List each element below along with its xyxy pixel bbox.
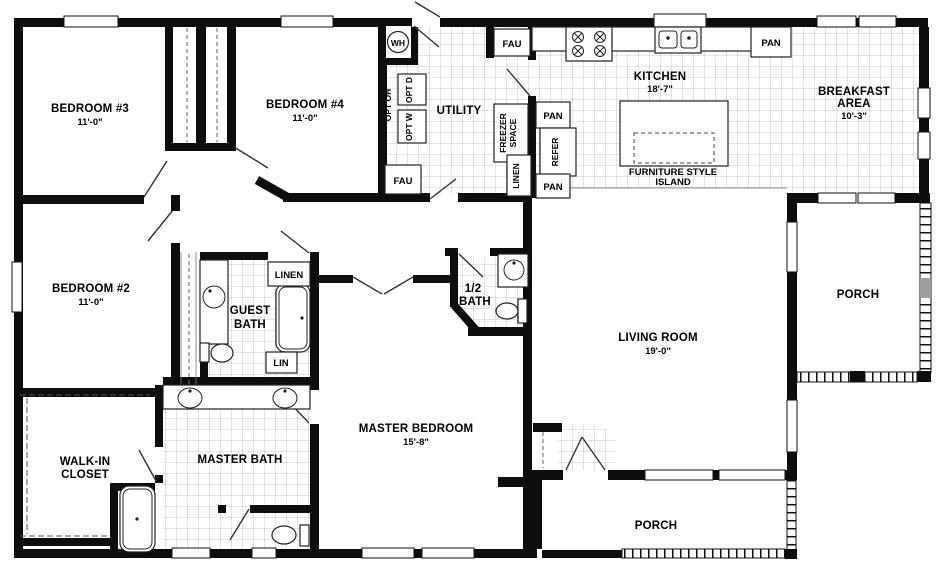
bedroom3-dim: 11'-0" (77, 117, 102, 128)
master-bath-floor (163, 385, 310, 549)
master-sink-right-faucet (283, 389, 286, 392)
opt-w-label: OPT W (404, 112, 414, 141)
master-bedroom-window-2 (422, 548, 474, 558)
opt-d-label: OPT D (404, 77, 414, 103)
floor-plan-drawing: BEDROOM #3 11'-0" BEDROOM #4 11'-0" BEDR… (0, 0, 943, 574)
living-label: LIVING ROOM (618, 332, 698, 344)
half-bath-toilet-bowl (496, 303, 518, 319)
freezer-label-1: FREEZER (498, 113, 508, 153)
bedroom2-dim: 11'-0" (78, 297, 103, 308)
walkin-door (139, 450, 156, 481)
breakfast-porch-window-2 (858, 193, 895, 203)
guest-bath-label-2: BATH (234, 319, 266, 331)
bedroom2-label: BEDROOM #2 (52, 283, 130, 295)
master-double-door-left (353, 277, 382, 294)
breakfast-right-window-1 (918, 88, 930, 118)
utility-exterior-door-leaf-out (415, 2, 440, 17)
railings (622, 203, 931, 558)
porch-wall-window-2 (719, 470, 785, 480)
opt-oh-label: OPT OH (383, 89, 393, 122)
floor-plan-canvas: BEDROOM #3 11'-0" BEDROOM #4 11'-0" BEDR… (0, 0, 943, 574)
breakfast-porch-window-1 (818, 193, 856, 203)
guest-toilet-tank (200, 343, 209, 362)
bottom-porch-label: PORCH (635, 520, 678, 532)
right-porch-label: PORCH (837, 289, 880, 301)
breakfast-label-1: BREAKFAST (818, 86, 890, 98)
breakfast-window-1 (817, 16, 856, 27)
lin-label: LIN (273, 358, 288, 369)
pan-lower-label: PAN (543, 182, 562, 193)
bedroom3-label: BEDROOM #3 (51, 103, 129, 115)
breakfast-right-window-2 (918, 132, 930, 159)
guest-bath-tub (276, 284, 310, 352)
living-east-window (787, 400, 797, 452)
half-bath-toilet-tank (518, 299, 527, 323)
master-bedroom-label: MASTER BEDROOM (359, 423, 474, 435)
guest-toilet-bowl (211, 344, 233, 362)
right-porch-railing-post-gray (920, 278, 931, 298)
master-bath-label: MASTER BATH (197, 454, 282, 466)
pan-upper-label: PAN (543, 111, 562, 122)
sink-drain-left (666, 36, 670, 40)
guest-bath-sink-faucet (208, 289, 211, 292)
master-toilet-tank (300, 525, 309, 546)
kitchen-dim: 18'-7" (647, 84, 673, 95)
bedroom2-door (148, 210, 173, 241)
walkin-label-2: CLOSET (61, 469, 109, 481)
pan-kitchen-label: PAN (761, 38, 780, 49)
bedroom2-window (12, 262, 22, 312)
kitchen-counter (532, 27, 752, 51)
master-double-door-right (384, 277, 413, 294)
island-label-2: ISLAND (655, 177, 691, 188)
breakfast-label-2: AREA (837, 98, 870, 110)
linen-utility-label: LINEN (511, 163, 521, 189)
utility-exterior-door-opening (412, 18, 440, 27)
stove-fixture (566, 27, 612, 61)
bottom-porch-side-railing (787, 480, 796, 550)
bedroom3-door (144, 161, 167, 197)
bedroom3-window (64, 16, 118, 27)
bedroom4-dim: 11'-0" (292, 113, 317, 124)
fau-top-label: FAU (503, 39, 522, 50)
breakfast-window-2 (859, 16, 896, 27)
master-bath-window-2 (252, 548, 276, 558)
kitchen-label: KITCHEN (634, 71, 687, 83)
refer-label: REFER (550, 138, 560, 167)
sink-drain-right (687, 36, 691, 40)
bedroom4-door (234, 147, 268, 168)
master-bath-window-1 (172, 548, 210, 558)
right-porch-window (787, 222, 797, 272)
guest-bath-door (281, 231, 309, 253)
utility-label: UTILITY (437, 105, 482, 117)
wh-label: WH (391, 38, 405, 48)
guest-tub-drain (300, 316, 303, 319)
porch-wall-window-1 (645, 470, 713, 480)
half-bath-label-2: BATH (459, 296, 491, 308)
living-dim: 19'-0" (645, 346, 671, 357)
kitchen-sink-window (654, 14, 706, 27)
freezer-label-2: SPACE (508, 118, 518, 147)
fau-bottom-label: FAU (394, 176, 413, 187)
linen-hall-label: LINEN (275, 270, 304, 281)
master-sink-left-faucet (188, 389, 191, 392)
walkin-label-1: WALK-IN (60, 456, 111, 468)
master-bedroom-window-1 (362, 548, 414, 558)
half-bath-sink-faucet (512, 261, 515, 264)
guest-bath-label-1: GUEST (230, 305, 271, 317)
bottom-porch-railing (622, 549, 785, 558)
master-bedroom-dim: 15'-8" (403, 437, 429, 448)
breakfast-dim: 10'-3" (841, 111, 867, 122)
master-tub-drain (135, 517, 138, 520)
bedroom4-label: BEDROOM #4 (266, 99, 344, 111)
entry-floor (558, 425, 616, 470)
half-bath-label-1: 1/2 (465, 283, 482, 295)
bedroom4-window (281, 16, 333, 27)
master-toilet-bowl (272, 526, 296, 544)
breakfast-floor (787, 27, 919, 193)
